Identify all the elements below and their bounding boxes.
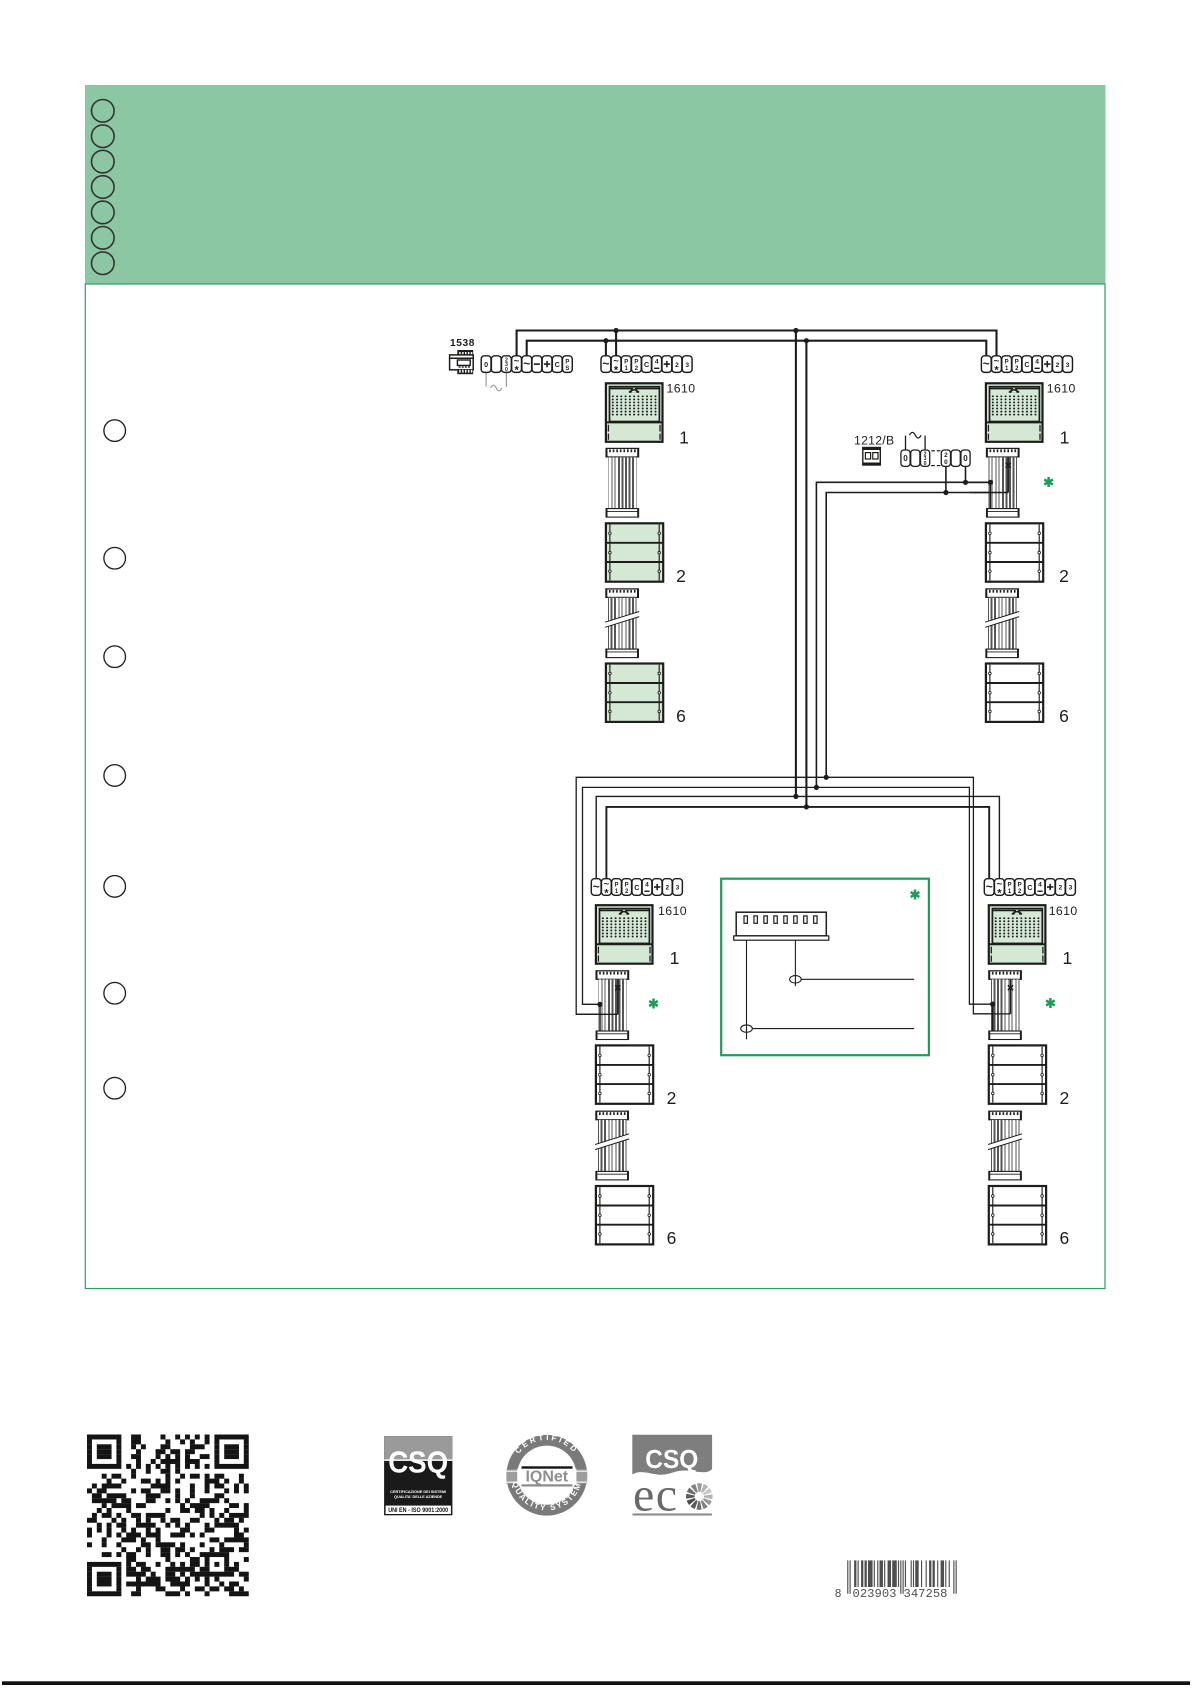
svg-text:*: * (614, 364, 619, 376)
svg-text:4: 4 (655, 359, 659, 366)
svg-text:CERTIFICAZIONE DEI SISTEMI: CERTIFICAZIONE DEI SISTEMI (390, 1490, 446, 1494)
svg-text:4: 4 (1038, 882, 1042, 889)
svg-text:3: 3 (685, 362, 689, 369)
svg-text:6: 6 (676, 706, 686, 726)
svg-text:3: 3 (1069, 885, 1073, 892)
svg-text:~: ~ (523, 357, 530, 371)
svg-text:0: 0 (903, 454, 908, 463)
svg-text:*: * (997, 887, 1002, 899)
svg-text:6: 6 (1060, 1228, 1070, 1248)
svg-text:P: P (1015, 359, 1019, 365)
svg-text:2: 2 (1059, 566, 1069, 586)
svg-text:1: 1 (670, 948, 680, 968)
svg-text:C: C (634, 883, 639, 892)
svg-text:*: * (604, 887, 609, 899)
svg-text:1610: 1610 (658, 904, 687, 918)
svg-text:0: 0 (505, 367, 508, 373)
svg-text:P: P (565, 359, 569, 365)
svg-text:4: 4 (1035, 359, 1039, 366)
svg-text:~: ~ (602, 357, 609, 371)
svg-text:P: P (1008, 882, 1012, 888)
svg-text:1: 1 (1060, 428, 1070, 448)
svg-text:2: 2 (676, 566, 686, 586)
svg-text:QUALITA' DELLE AZIENDE: QUALITA' DELLE AZIENDE (394, 1495, 443, 1499)
svg-text:S: S (565, 366, 569, 372)
svg-text:2: 2 (667, 1088, 677, 1108)
svg-text:0: 0 (484, 360, 488, 369)
svg-text:0: 0 (924, 461, 927, 467)
svg-text:*: * (994, 364, 999, 376)
svg-text:023903: 023903 (853, 1588, 897, 1601)
svg-text:CSQ: CSQ (388, 1445, 448, 1480)
svg-text:2: 2 (1060, 1088, 1070, 1108)
svg-text:P: P (634, 359, 638, 365)
svg-text:C: C (555, 360, 560, 369)
svg-text:2: 2 (944, 452, 948, 459)
svg-text:0: 0 (944, 459, 948, 466)
svg-text:0: 0 (963, 454, 968, 463)
svg-text:3: 3 (1066, 362, 1070, 369)
svg-text:3: 3 (676, 885, 680, 892)
svg-text:C: C (644, 360, 649, 369)
svg-text:*: * (514, 364, 519, 376)
svg-text:1538: 1538 (450, 338, 475, 349)
svg-text:347258: 347258 (904, 1588, 948, 1601)
svg-text:~: ~ (986, 880, 993, 894)
svg-text:IQNet: IQNet (525, 1469, 568, 1486)
svg-text:C: C (1027, 883, 1032, 892)
svg-text:1610: 1610 (667, 382, 696, 396)
svg-text:P: P (1005, 359, 1009, 365)
svg-text:4: 4 (645, 882, 649, 889)
svg-text:8: 8 (835, 1588, 842, 1601)
svg-text:C: C (1024, 360, 1029, 369)
svg-text:6: 6 (667, 1228, 677, 1248)
svg-text:~: ~ (983, 357, 990, 371)
svg-text:2: 2 (675, 362, 679, 369)
svg-text:1212/B: 1212/B (854, 434, 894, 448)
svg-text:2: 2 (1056, 362, 1060, 369)
svg-text:~: ~ (593, 880, 600, 894)
svg-text:2: 2 (1058, 885, 1062, 892)
svg-text:P: P (624, 359, 628, 365)
svg-text:2: 2 (665, 885, 669, 892)
svg-text:P: P (625, 882, 629, 888)
svg-text:1610: 1610 (1047, 382, 1076, 396)
svg-text:P: P (1018, 882, 1022, 888)
svg-text:1: 1 (1063, 948, 1073, 968)
svg-text:UNI EN - ISO 9001:2000: UNI EN - ISO 9001:2000 (388, 1507, 448, 1514)
svg-text:1610: 1610 (1049, 904, 1078, 918)
svg-text:1: 1 (679, 428, 689, 448)
svg-text:P: P (615, 882, 619, 888)
svg-text:6: 6 (1059, 706, 1069, 726)
